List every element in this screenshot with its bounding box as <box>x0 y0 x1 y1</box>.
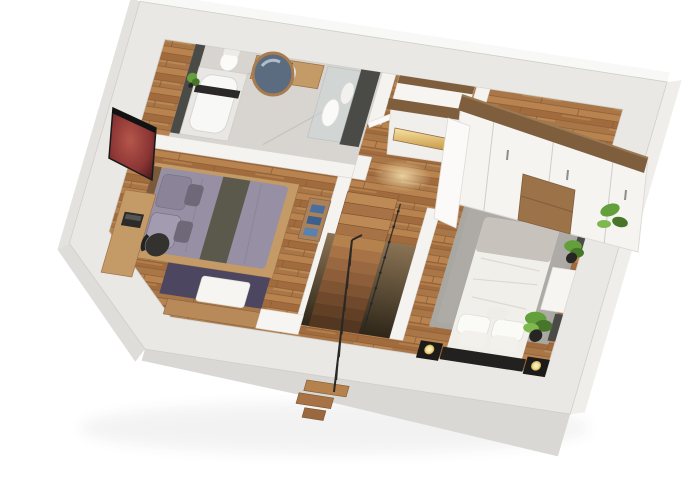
floorplan-render <box>0 0 700 498</box>
mirror-overlay <box>253 53 293 95</box>
floorplan-svg <box>0 0 700 498</box>
door-handle <box>567 170 568 180</box>
door-handle <box>625 190 626 200</box>
plant-leaves <box>597 220 611 228</box>
door-handle <box>507 150 508 160</box>
